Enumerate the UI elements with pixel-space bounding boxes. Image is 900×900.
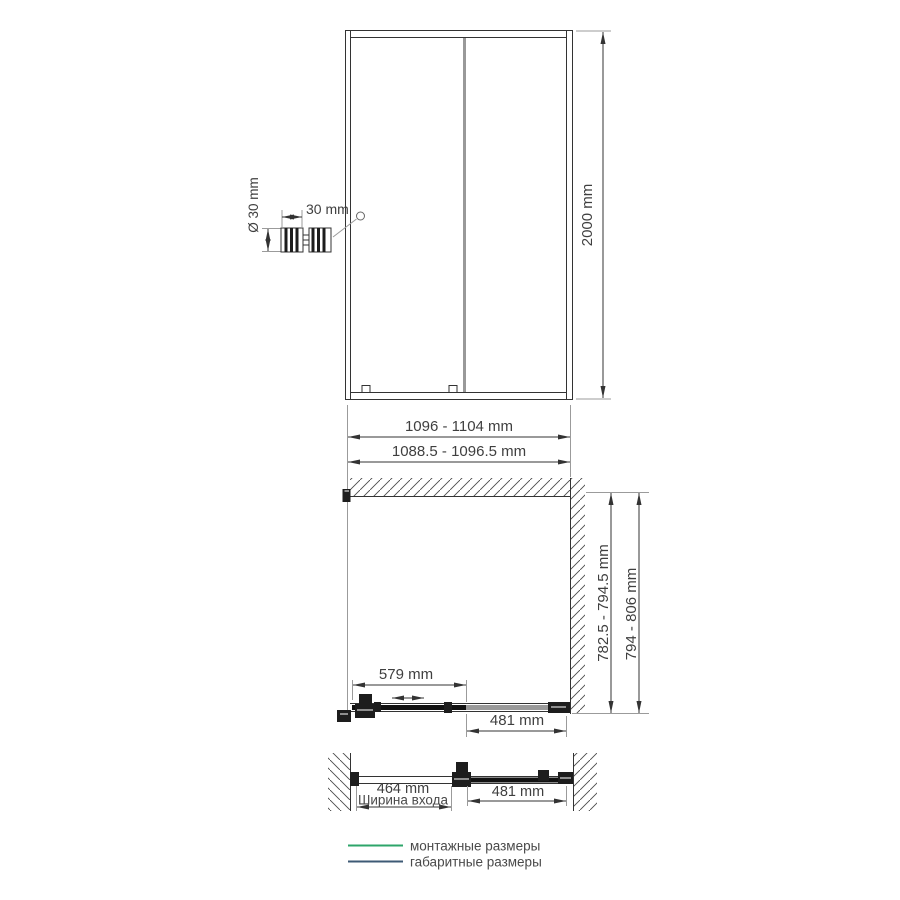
legend: монтажные размеры габаритные размеры bbox=[348, 839, 542, 870]
handle-detail: 30 mm Ø 30 mm bbox=[246, 177, 349, 252]
height-dimension: 2000 mm bbox=[576, 31, 611, 399]
legend-overall-label: габаритные размеры bbox=[410, 855, 542, 870]
open-plan-view: 464 mm Ширина входа 481 mm bbox=[328, 753, 597, 811]
legend-mounting-label: монтажные размеры bbox=[410, 839, 540, 854]
overall-depth-label: 794 - 806 mm bbox=[623, 568, 640, 661]
overall-width-label: 1096 - 1104 mm bbox=[405, 418, 513, 435]
wall-profile bbox=[337, 710, 351, 722]
width-dimensions: 1096 - 1104 mm 1088.5 - 1096.5 mm bbox=[348, 405, 571, 710]
wall-fixing-bracket bbox=[558, 772, 573, 784]
back-wall-hatch bbox=[350, 478, 585, 496]
plan-view: 579 mm 481 mm bbox=[337, 478, 585, 737]
height-dimension-label: 2000 mm bbox=[579, 184, 596, 247]
roller-carriage bbox=[355, 694, 381, 718]
door-roller bbox=[362, 386, 370, 393]
side-wall-hatch bbox=[570, 496, 585, 714]
knob-diameter-label: Ø 30 mm bbox=[246, 177, 261, 233]
sliding-panel-width-label: 579 mm bbox=[379, 666, 433, 683]
mounting-width-label: 1088.5 - 1096.5 mm bbox=[392, 443, 526, 460]
handle-leader-line bbox=[333, 219, 357, 237]
mounting-depth-label: 782.5 - 794.5 mm bbox=[595, 544, 612, 662]
entry-width-caption: Ширина входа bbox=[358, 793, 449, 808]
front-view bbox=[333, 30, 573, 400]
panel-clamp bbox=[444, 702, 452, 713]
handle-knob-front bbox=[357, 212, 365, 220]
technical-drawing: 2000 mm 30 mm Ø 30 mm 1096 - bbox=[0, 0, 900, 900]
handle-knob-detail bbox=[281, 228, 331, 252]
door-roller bbox=[449, 386, 457, 393]
panel-clamp bbox=[538, 770, 549, 781]
open-door-panel-width-label: 481 mm bbox=[492, 784, 544, 800]
right-wall-hatch bbox=[573, 753, 597, 811]
wall-bracket bbox=[350, 772, 359, 786]
roller-carriage bbox=[452, 762, 471, 787]
fixed-panel-width-label: 481 mm bbox=[490, 712, 544, 729]
knob-length-label: 30 mm bbox=[306, 201, 349, 217]
drawing-svg: 2000 mm 30 mm Ø 30 mm 1096 - bbox=[0, 0, 900, 900]
left-wall-hatch bbox=[328, 753, 350, 811]
wall-fixing-bracket bbox=[548, 702, 570, 713]
